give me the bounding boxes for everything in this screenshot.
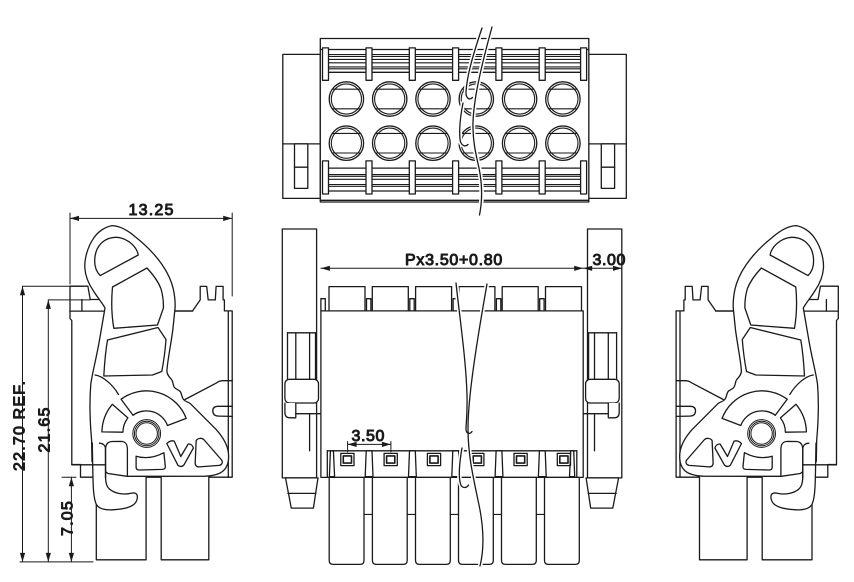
svg-text:21.65: 21.65 — [37, 406, 54, 452]
svg-text:22.70 REF.: 22.70 REF. — [12, 380, 29, 471]
svg-text:13.25: 13.25 — [129, 202, 175, 219]
svg-text:3.50: 3.50 — [352, 428, 386, 445]
svg-text:7.05: 7.05 — [60, 500, 77, 536]
svg-text:Px3.50+0.80: Px3.50+0.80 — [405, 252, 503, 269]
svg-text:3.00: 3.00 — [593, 252, 627, 269]
